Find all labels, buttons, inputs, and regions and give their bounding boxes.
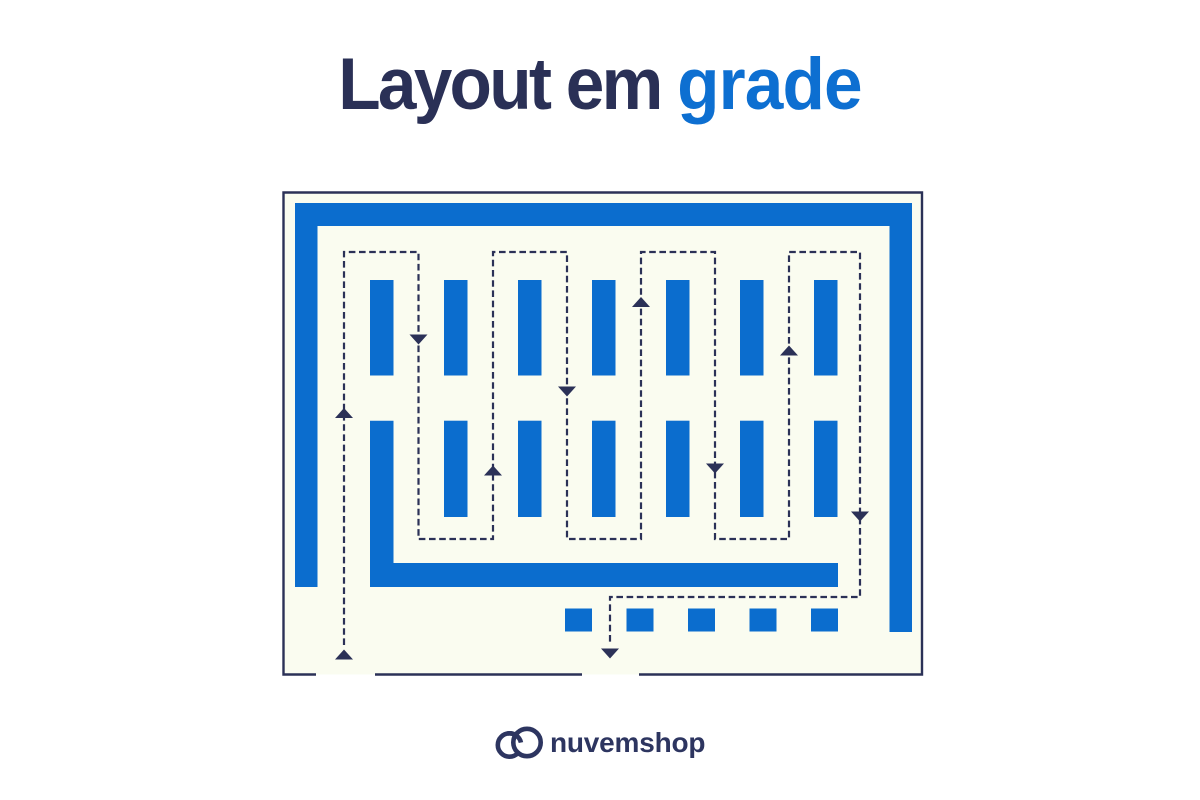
svg-text:nuvemshop: nuvemshop	[550, 727, 705, 758]
